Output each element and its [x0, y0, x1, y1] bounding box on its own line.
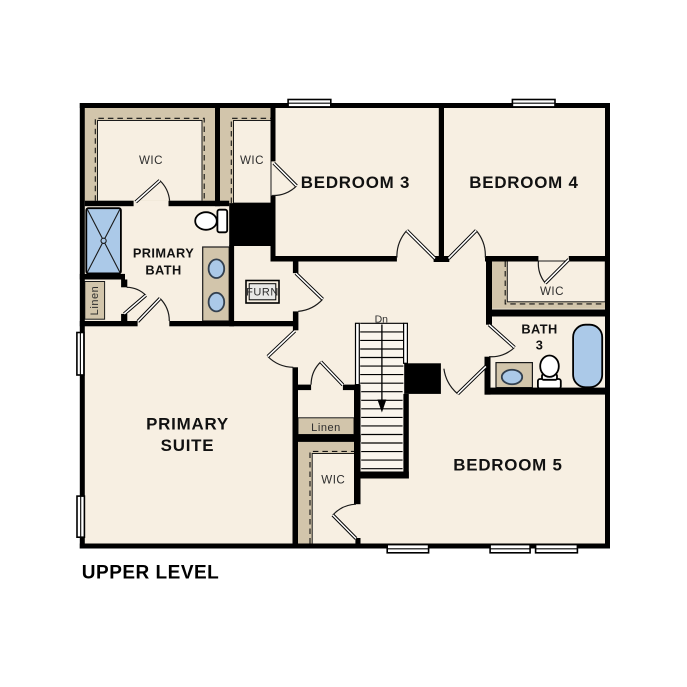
svg-text:3: 3 [536, 338, 544, 353]
svg-text:BEDROOM 4: BEDROOM 4 [469, 173, 579, 192]
svg-text:PRIMARY: PRIMARY [146, 415, 229, 434]
svg-text:BATH: BATH [145, 263, 181, 278]
svg-text:WIC: WIC [321, 474, 345, 487]
svg-text:Linen: Linen [311, 422, 341, 434]
svg-text:WIC: WIC [540, 285, 564, 298]
svg-text:Dn: Dn [375, 313, 389, 325]
svg-text:UPPER LEVEL: UPPER LEVEL [82, 563, 219, 584]
svg-text:BATH: BATH [521, 322, 557, 337]
svg-text:WIC: WIC [139, 154, 163, 167]
svg-text:PRIMARY: PRIMARY [133, 246, 194, 261]
svg-text:WIC: WIC [240, 154, 264, 167]
svg-text:SUITE: SUITE [161, 436, 215, 455]
svg-text:Linen: Linen [89, 286, 101, 316]
svg-text:BEDROOM 5: BEDROOM 5 [453, 456, 563, 475]
svg-text:FURN: FURN [246, 287, 279, 299]
svg-text:BEDROOM 3: BEDROOM 3 [301, 173, 411, 192]
